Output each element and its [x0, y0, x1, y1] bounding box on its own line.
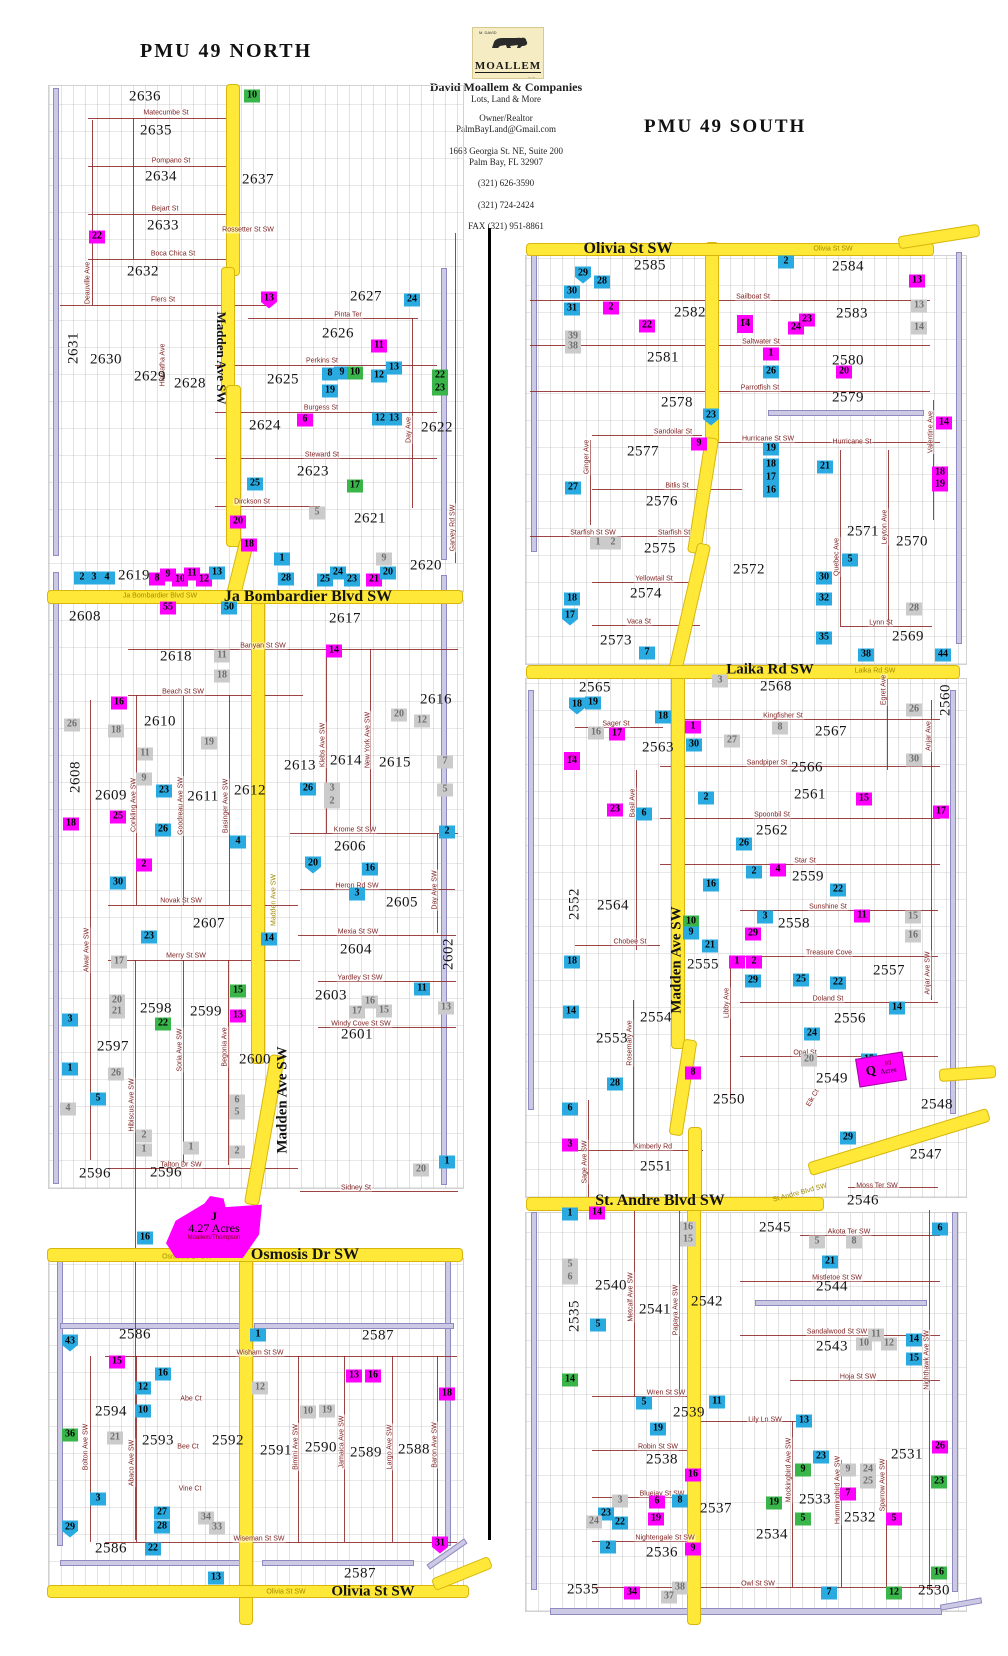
lot-marker: 10 — [856, 1338, 872, 1351]
street-label: Day Ave — [406, 416, 413, 444]
street-label: Metcalf Ave SW — [628, 1271, 635, 1322]
lot-marker: 1 — [685, 721, 701, 734]
block-number-label: 2618 — [160, 649, 192, 666]
lot-marker: 13 — [909, 275, 925, 288]
street-label: Burgess St — [303, 405, 339, 412]
block-number-label: 2617 — [329, 611, 361, 628]
lot-marker: 18 — [564, 593, 580, 606]
lot-marker: 13 — [911, 300, 927, 313]
block-number-label: 2632 — [127, 264, 159, 281]
block-number-label: 2594 — [95, 1404, 127, 1421]
block-number-label: 2624 — [249, 418, 281, 435]
block-number-label: 2608 — [69, 609, 101, 626]
lot-marker: 11 — [371, 340, 387, 353]
block-number-label: 2609 — [95, 788, 127, 805]
block-number-label: 2571 — [847, 524, 879, 541]
street-label: Moss Ter SW — [855, 1183, 899, 1190]
street-line — [88, 259, 233, 260]
lot-marker: 16 — [905, 930, 921, 943]
lot-marker: 5 — [562, 1259, 578, 1272]
lot-marker: 10 — [135, 1405, 151, 1418]
block-number-label: 2628 — [174, 376, 206, 393]
block-number-label: 2603 — [315, 988, 347, 1005]
lot-marker: 14 — [911, 322, 927, 335]
lot-marker: 13 — [209, 567, 225, 580]
lavender-easement-bar — [60, 1560, 242, 1566]
block-number-label: 2537 — [700, 1501, 732, 1518]
street-label: Owl St SW — [740, 1581, 776, 1588]
lot-marker: 7 — [840, 1488, 856, 1501]
lot-marker: 5 — [795, 1513, 811, 1526]
street-label: Soria Ave SW — [177, 1027, 184, 1072]
block-number-label: 2626 — [322, 326, 354, 343]
street-line — [215, 365, 437, 366]
lot-marker: 8 — [685, 1067, 701, 1080]
lot-marker: 9 — [683, 927, 699, 940]
street-line — [88, 214, 233, 215]
lot-marker: 21 — [822, 1256, 838, 1269]
street-label: Deauville Ave — [85, 261, 92, 305]
block-number-label: 2556 — [834, 1011, 866, 1028]
lavender-easement-bar — [53, 572, 59, 1184]
lot-marker: 29 — [840, 1132, 856, 1145]
lot-marker: 37 — [661, 1591, 677, 1604]
block-number-label: 2541 — [639, 1302, 671, 1319]
block-number-label: 2549 — [816, 1071, 848, 1088]
block-number-label: 2579 — [832, 390, 864, 407]
block-number-label: 2586 — [95, 1541, 127, 1558]
block-number-label: 2572 — [733, 562, 765, 579]
lot-marker: 26 — [108, 1068, 124, 1081]
block-number-label: 2558 — [778, 916, 810, 933]
lot-marker: 22 — [830, 977, 846, 990]
lot-marker: 26 — [300, 783, 316, 796]
street-line — [412, 318, 413, 508]
street-label: Starfish St SW — [569, 530, 617, 537]
road-name-label: Osmosis Dr SW — [251, 1246, 359, 1264]
street-label: Doland St — [812, 996, 845, 1003]
lot-marker: 17 — [111, 956, 127, 969]
street-label: Bimini Ave SW — [293, 1423, 300, 1471]
street-label: Treasure Cove — [805, 950, 853, 957]
lot-marker: 14 — [326, 645, 342, 658]
block-number-label: 2619 — [118, 568, 150, 585]
lot-marker: 5 — [90, 1093, 106, 1106]
lot-marker: 1 — [183, 1142, 199, 1155]
block-number-label: 2584 — [832, 259, 864, 276]
lot-marker: 23 — [607, 804, 623, 817]
lot-marker: 2 — [746, 956, 762, 969]
lot-marker: 26 — [736, 838, 752, 851]
lot-marker: 55 — [160, 602, 176, 615]
lot-marker: 23 — [344, 574, 360, 587]
street-label: Kingfisher St — [762, 713, 804, 720]
street-label: Sailboat St — [735, 294, 771, 301]
lot-marker: 20 — [413, 1164, 429, 1177]
q-parcel-label: Q — [864, 1057, 878, 1083]
block-number-label: 2582 — [674, 305, 706, 322]
lot-marker: 3 — [349, 888, 365, 901]
street-label: Garvey Rd SW — [450, 504, 457, 553]
lot-marker: 16 — [763, 485, 779, 498]
lot-marker: 8 — [846, 1236, 862, 1249]
lot-marker: 1 — [763, 348, 779, 361]
lot-marker: 16 — [365, 1370, 381, 1383]
lot-marker: 38 — [565, 341, 581, 354]
street-line — [88, 118, 233, 119]
lavender-easement-bar — [60, 1323, 242, 1329]
street-label: Abe Ct — [179, 1396, 202, 1403]
lot-marker: 15 — [680, 1234, 696, 1247]
highlighted-road — [940, 1066, 996, 1081]
lot-marker: 22 — [639, 320, 655, 333]
block-number-label: 2614 — [330, 753, 362, 770]
lot-marker: 3 — [324, 783, 340, 796]
street-label: New York Ave SW — [365, 711, 372, 769]
lot-marker: 23 — [432, 383, 448, 396]
block-number-label: 2586 — [119, 1327, 151, 1344]
lot-marker: 4 — [770, 864, 786, 877]
street-label: Sandalwood St SW — [806, 1329, 868, 1336]
street-line — [108, 1168, 298, 1169]
lot-marker: 22 — [432, 370, 448, 383]
street-line — [88, 166, 233, 167]
street-line — [60, 305, 270, 306]
block-number-label: 2555 — [687, 957, 719, 974]
lot-marker: 26 — [932, 1441, 948, 1454]
lot-marker: 30 — [686, 739, 702, 752]
street-label: Rossetter St SW — [221, 227, 275, 234]
lot-marker: 23 — [931, 1476, 947, 1489]
lot-marker: 13 — [346, 1370, 362, 1383]
street-line — [128, 695, 303, 696]
lot-marker: 19 — [766, 1497, 782, 1510]
lot-marker: 12 — [135, 1382, 151, 1395]
lot-marker: 35 — [816, 632, 832, 645]
street-label: Baron Ave SW — [432, 1421, 439, 1468]
lot-marker: 29 — [745, 928, 761, 941]
block-number-label: 2543 — [816, 1339, 848, 1356]
block-number-label: 2553 — [596, 1031, 628, 1048]
block-number-label: 2607 — [193, 916, 225, 933]
lot-marker: 33 — [209, 1522, 225, 1535]
street-label: Wiseman St SW — [233, 1536, 286, 1543]
lot-marker: 16 — [703, 879, 719, 892]
lot-marker: 10 — [347, 367, 363, 380]
street-line — [660, 818, 940, 819]
lot-marker: 34 — [624, 1587, 640, 1600]
j-parcel-owner: Moallem/Thompson — [166, 1235, 262, 1241]
street-label: Sidney St — [340, 1185, 372, 1192]
street-label: Starfish St — [657, 530, 691, 537]
street-label: Flers St — [150, 297, 176, 304]
street-label: Perkins St — [305, 358, 339, 365]
block-number-label: 2564 — [597, 898, 629, 915]
lot-marker: 2 — [136, 1130, 152, 1143]
block-number-label: 2544 — [816, 1279, 848, 1296]
road-name-label: Olivia St SW — [584, 240, 673, 258]
street-label: Robin St SW — [637, 1444, 679, 1451]
street-label: Leyton Ave — [882, 509, 889, 546]
lot-marker: 23 — [156, 785, 172, 798]
lot-marker: 21 — [107, 1432, 123, 1445]
lot-marker: 26 — [155, 824, 171, 837]
lot-marker: 25 — [247, 478, 263, 491]
lot-marker: 16 — [155, 1368, 171, 1381]
lot-marker: 12 — [414, 715, 430, 728]
road-name-label: Madden Ave SW — [271, 874, 278, 926]
lot-marker: 27 — [565, 482, 581, 495]
lot-marker: 11 — [137, 748, 153, 761]
street-label: Parrotfish St — [740, 385, 781, 392]
street-label: Hibiscus Ave SW — [129, 1077, 136, 1132]
block-number-label: 2637 — [242, 172, 274, 189]
lot-marker: 1 — [439, 1156, 455, 1169]
street-label: Lily Ln SW — [747, 1417, 782, 1424]
lot-marker: 18 — [108, 725, 124, 738]
lot-marker: 17 — [763, 472, 779, 485]
lot-marker: 9 — [691, 438, 707, 451]
block-number-label: 2533 — [799, 1492, 831, 1509]
lot-marker: 16 — [931, 1567, 947, 1580]
lot-marker: 28 — [278, 573, 294, 586]
block-number-label: 2625 — [267, 372, 299, 389]
street-line — [215, 412, 437, 413]
lot-marker: 13 — [796, 1415, 812, 1428]
lavender-easement-bar — [755, 1300, 927, 1306]
street-label: Alwar Ave SW — [84, 927, 91, 973]
lot-marker: 26 — [64, 719, 80, 732]
lot-marker: 24 — [788, 322, 804, 335]
highlighted-road — [227, 85, 239, 275]
lot-marker: 3 — [712, 675, 728, 688]
road-name-label: St. Andre Blvd SW — [595, 1192, 725, 1210]
lot-marker: 13 — [386, 413, 402, 426]
lot-marker: 6 — [932, 1223, 948, 1236]
lot-marker: 28 — [906, 603, 922, 616]
lot-marker: 8 — [672, 1495, 688, 1508]
lavender-easement-bar — [53, 88, 59, 556]
lot-marker: 12 — [252, 1382, 268, 1395]
block-number-label: 2598 — [140, 1001, 172, 1018]
lot-marker: 2 — [778, 256, 794, 269]
lot-marker: 5 — [809, 1236, 825, 1249]
lot-marker: 1 — [274, 553, 290, 566]
lot-marker: 30 — [816, 572, 832, 585]
lot-marker: 21 — [702, 940, 718, 953]
road-name-label: Olivia St SW — [331, 1584, 414, 1601]
block-number-label: 2563 — [642, 740, 674, 757]
block-number-label: 2540 — [595, 1278, 627, 1295]
lot-marker: 30 — [110, 877, 126, 890]
lot-marker: 20 — [380, 567, 396, 580]
street-label: Bee Ct — [176, 1444, 199, 1451]
lavender-easement-bar — [262, 1560, 414, 1566]
street-label: Mockingbird Ave SW — [786, 1437, 793, 1503]
block-number-label: 2554 — [640, 1010, 672, 1027]
street-line — [530, 345, 930, 346]
lot-marker: 18 — [564, 956, 580, 969]
lot-marker: 9 — [685, 1543, 701, 1556]
lot-marker: 44 — [935, 649, 951, 662]
street-label: Wisham St SW — [235, 1350, 284, 1357]
lavender-easement-bar — [956, 252, 962, 644]
street-label: Jamaica Ave SW — [339, 1415, 346, 1470]
lot-marker: 16 — [362, 863, 378, 876]
lot-marker: 13 — [230, 1010, 246, 1023]
block-number-label: 2634 — [145, 169, 177, 186]
lot-marker: 15 — [905, 911, 921, 924]
highlighted-road — [899, 225, 980, 248]
lot-marker: 2 — [324, 796, 340, 809]
street-label: Klebs Ave SW — [320, 722, 327, 768]
lot-marker: 2 — [439, 826, 455, 839]
lot-marker: 15 — [109, 1356, 125, 1369]
block-number-label: 2583 — [836, 306, 868, 323]
lot-marker: 17 — [933, 806, 949, 819]
lot-marker: 17 — [609, 728, 625, 741]
street-label: Hoja St SW — [839, 1374, 877, 1381]
block-number-label: 2613 — [284, 758, 316, 775]
street-label: Goodreau Ave SW — [178, 776, 185, 836]
lot-marker: 27 — [724, 735, 740, 748]
block-number-label: 2591 — [260, 1443, 292, 1460]
street-label: Star St — [793, 858, 816, 865]
block-number-label: 2536 — [646, 1545, 678, 1562]
lot-marker: 13 — [386, 362, 402, 375]
block-number-label: 2535 — [567, 1582, 599, 1599]
block-number-label: 2559 — [792, 869, 824, 886]
lot-marker: 21 — [109, 1006, 125, 1019]
lot-marker: 18 — [214, 670, 230, 683]
block-number-label: 2635 — [140, 123, 172, 140]
block-number-label: 2592 — [212, 1433, 244, 1450]
lavender-easement-bar — [445, 1258, 451, 1546]
street-line — [530, 300, 930, 301]
lot-marker: 3 — [612, 1495, 628, 1508]
lot-marker: 26 — [906, 704, 922, 717]
street-label: Anjar Ave SW — [925, 950, 932, 995]
lot-marker: 5 — [590, 1319, 606, 1332]
block-number-label: 2550 — [713, 1092, 745, 1109]
street-label: Lynn St — [868, 620, 893, 627]
company-logo: M. DAVID MOALLEM INC — [472, 27, 544, 79]
lot-marker: 3 — [562, 1139, 578, 1152]
lot-marker: 19 — [585, 697, 601, 710]
lot-marker: 1 — [590, 537, 606, 550]
lot-marker: 3 — [62, 1014, 78, 1027]
street-line — [108, 960, 300, 961]
block-number-label: 2570 — [896, 534, 928, 551]
lavender-easement-bar — [531, 1212, 537, 1590]
block-number-label: 2581 — [647, 350, 679, 367]
lot-marker: 11 — [214, 650, 230, 663]
street-label: Kimberly Rd — [633, 1144, 673, 1151]
lot-marker: 14 — [936, 417, 952, 430]
block-number-label: 2552 — [567, 888, 584, 920]
lot-marker: 1 — [62, 1063, 78, 1076]
lot-marker: 7 — [437, 756, 453, 769]
lot-marker: 20 — [836, 366, 852, 379]
street-label: Vaca St — [626, 619, 652, 626]
lot-marker: 18 — [63, 818, 79, 831]
lot-marker: 4 — [230, 836, 246, 849]
block-number-label: 2627 — [350, 289, 382, 306]
map-grid-panel — [48, 85, 464, 592]
lot-marker: 11 — [854, 910, 870, 923]
street-label: Quebec Ave — [834, 537, 841, 577]
lot-marker: 6 — [649, 1496, 665, 1509]
block-number-label: 2601 — [341, 1027, 373, 1044]
block-number-label: 2557 — [873, 963, 905, 980]
lot-marker-number: 14 — [740, 318, 750, 329]
block-number-label: 2620 — [410, 558, 442, 575]
street-label: Mexia St SW — [337, 929, 379, 936]
lot-marker: 23 — [813, 1451, 829, 1464]
lot-marker: 7 — [821, 1587, 837, 1600]
street-label: Akota Ter SW — [827, 1229, 872, 1236]
block-number-label: 2588 — [398, 1442, 430, 1459]
street-label: Sage Ave SW — [582, 1139, 589, 1184]
lot-marker: 5 — [437, 784, 453, 797]
street-line — [740, 1056, 938, 1057]
lot-marker: 14 — [562, 1374, 578, 1387]
lot-marker: 26 — [763, 366, 779, 379]
lot-marker-number: 14 — [567, 755, 577, 766]
lot-marker: 22 — [155, 1018, 171, 1031]
lot-marker: 18 — [763, 459, 779, 472]
lot-marker: 4 — [99, 572, 115, 585]
street-label: Largo Ave SW — [387, 1424, 394, 1471]
lot-marker: 9 — [136, 773, 152, 786]
lot-marker: 30 — [564, 286, 580, 299]
street-label: Bitlis St — [664, 483, 689, 490]
lot-marker: 5 — [886, 1513, 902, 1526]
block-number-label: 2578 — [661, 395, 693, 412]
plat-map-flyer: PMU 49 NORTH PMU 49 SOUTH M. DAVID MOALL… — [0, 0, 1008, 1656]
map-grid-panel — [525, 1212, 967, 1612]
lot-marker: 2 — [229, 1146, 245, 1159]
block-number-label: 2574 — [630, 586, 662, 603]
block-number-label: 2596 — [79, 1166, 111, 1183]
street-label: Hurricane St — [832, 439, 873, 446]
lot-marker: 7 — [639, 647, 655, 660]
lot-marker: 14 — [589, 1207, 605, 1220]
lot-marker: 38 — [858, 649, 874, 662]
block-number-label: 2538 — [646, 1452, 678, 1469]
lot-marker: 24 — [804, 1028, 820, 1041]
lot-marker: 20 — [391, 709, 407, 722]
street-label: Sandpiper St — [746, 760, 788, 767]
street-label: Merry St SW — [165, 953, 207, 960]
lot-marker: 6 — [297, 414, 313, 427]
lot-marker: 4 — [60, 1103, 76, 1116]
street-label: Papaya Ave SW — [673, 1284, 680, 1336]
block-number-label: 2576 — [646, 494, 678, 511]
block-number-label: 2605 — [386, 895, 418, 912]
block-number-label: 2606 — [334, 839, 366, 856]
block-number-label: 2566 — [791, 760, 823, 777]
block-number-label: 2542 — [691, 1294, 723, 1311]
lot-marker: 2 — [603, 302, 619, 315]
street-label: Steward St — [304, 452, 340, 459]
block-number-label: 2600 — [239, 1052, 271, 1069]
lot-marker: 14 — [563, 1006, 579, 1019]
lot-marker: 6 — [636, 808, 652, 821]
lot-marker: 19 — [322, 385, 338, 398]
street-line — [530, 391, 930, 392]
lot-marker: 20 — [801, 1054, 817, 1067]
